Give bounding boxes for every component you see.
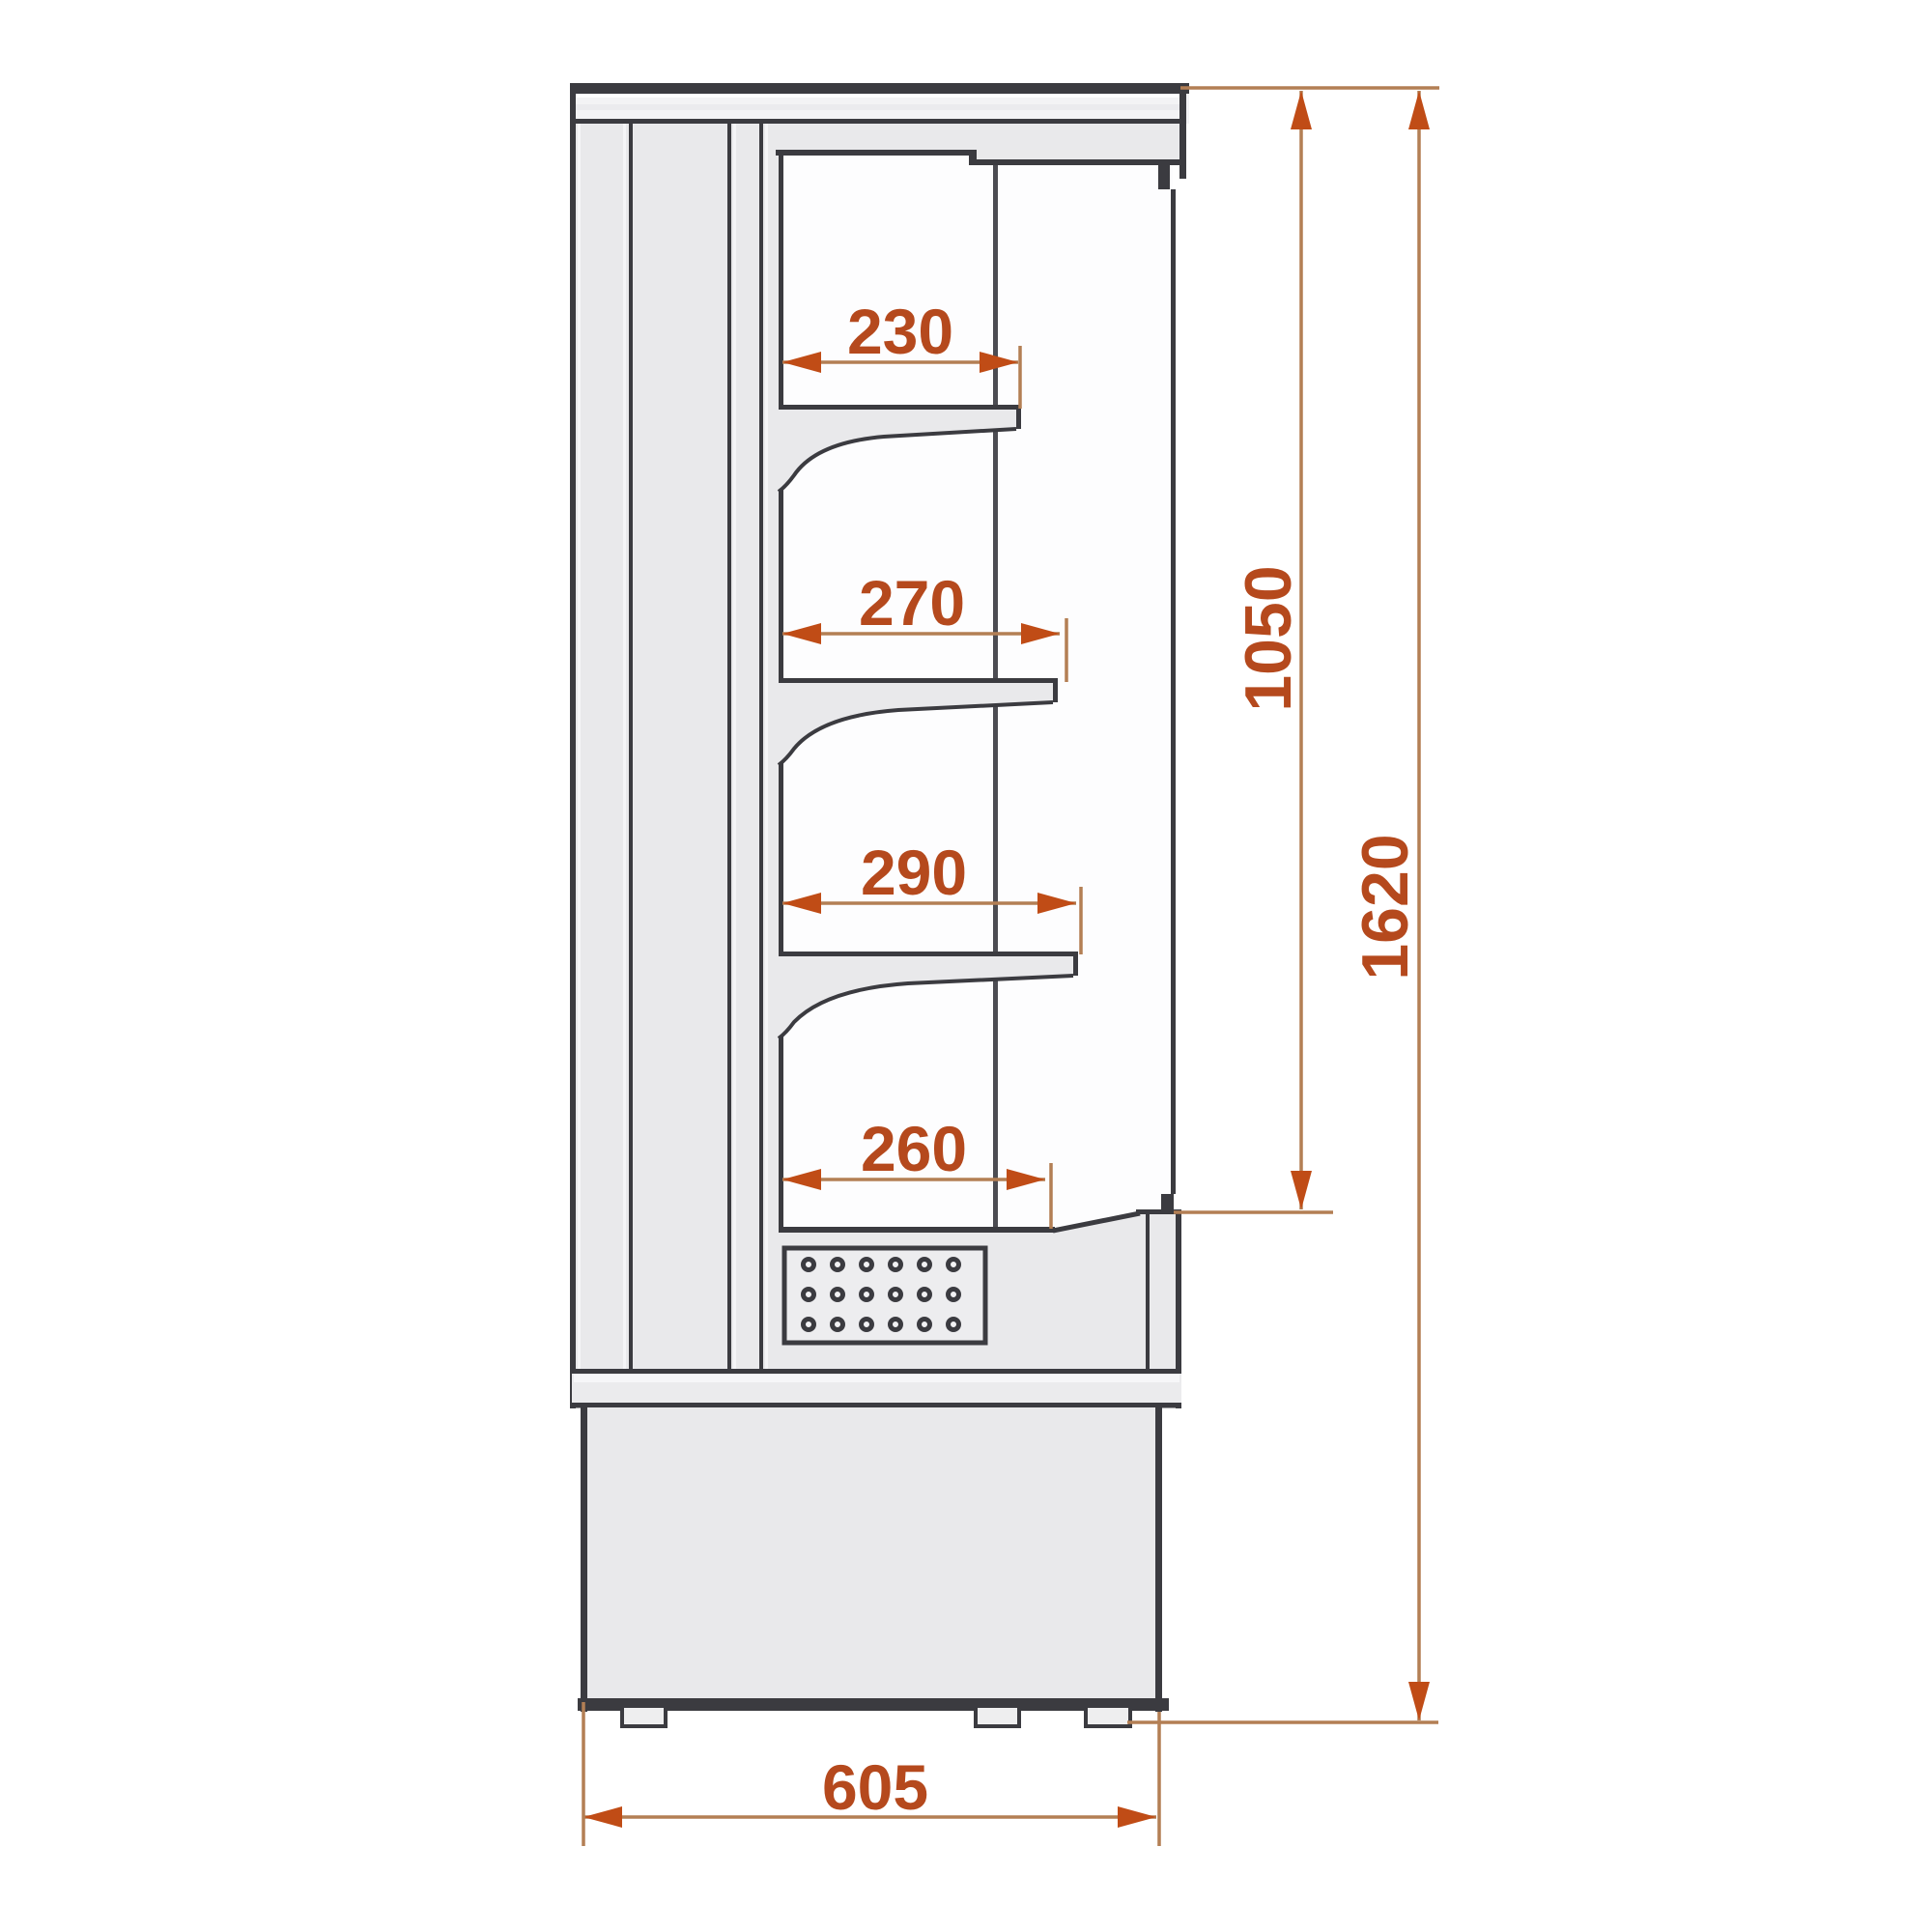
svg-text:1050: 1050 xyxy=(1232,565,1305,711)
svg-text:260: 260 xyxy=(861,1113,967,1184)
svg-text:290: 290 xyxy=(861,837,967,908)
svg-text:270: 270 xyxy=(859,567,965,639)
svg-text:1620: 1620 xyxy=(1349,834,1422,980)
svg-text:605: 605 xyxy=(822,1751,928,1823)
svg-text:230: 230 xyxy=(847,296,953,367)
